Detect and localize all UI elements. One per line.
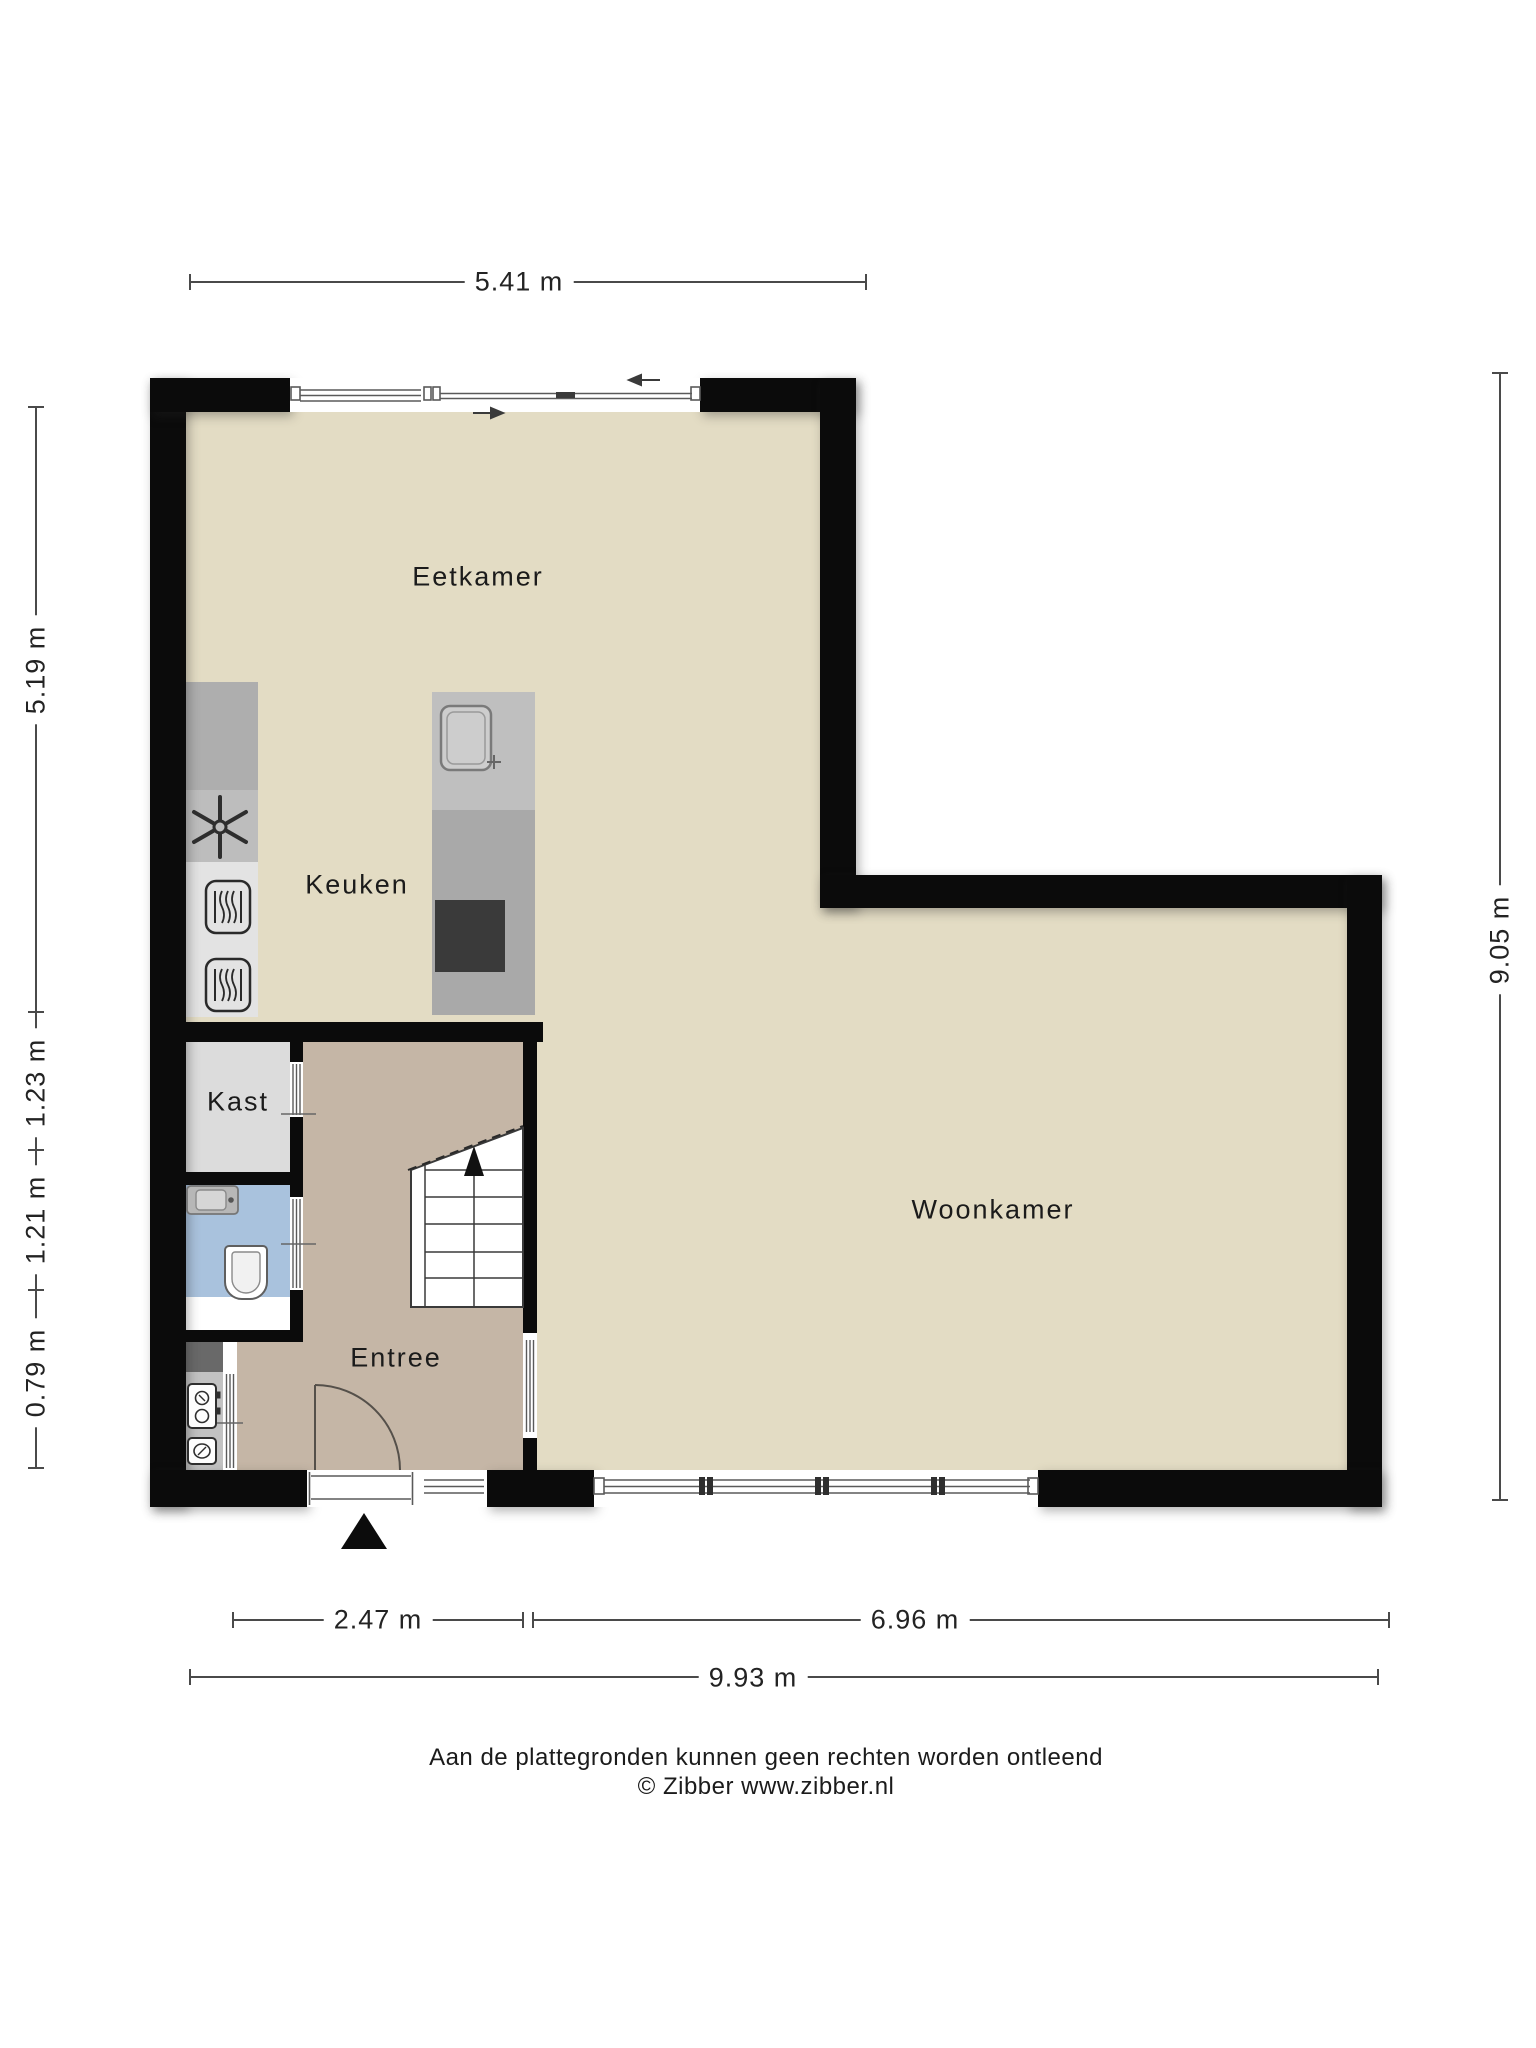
kitchen-counter-light-section bbox=[186, 862, 258, 1017]
dim-top: 5.41 m bbox=[465, 268, 574, 297]
wall-upper-east bbox=[820, 378, 856, 908]
wall-kitchen-hall bbox=[150, 1022, 543, 1042]
toilet-floor bbox=[186, 1185, 290, 1297]
meter-cupboard-floor bbox=[186, 1372, 223, 1470]
entrance-triangle-icon bbox=[341, 1513, 387, 1549]
room-label-keuken: Keuken bbox=[305, 872, 409, 899]
footer-disclaimer: Aan de plattegronden kunnen geen rechten… bbox=[429, 1744, 1103, 1772]
niche-floor bbox=[186, 1297, 290, 1330]
kitchen-counter-top bbox=[186, 682, 258, 790]
entree-glazed-panel bbox=[523, 1333, 537, 1438]
woonkamer-floor bbox=[537, 908, 1347, 1470]
room-label-entree: Entree bbox=[350, 1345, 442, 1372]
dim-left-4: 0.79 m bbox=[22, 1319, 51, 1428]
wall-niche-south bbox=[150, 1330, 303, 1342]
room-label-eetkamer: Eetkamer bbox=[412, 564, 544, 591]
kast-door bbox=[290, 1062, 303, 1117]
room-label-woonkamer: Woonkamer bbox=[911, 1197, 1074, 1224]
wall-step bbox=[820, 875, 1382, 908]
kitchen-counter-fan-section bbox=[186, 790, 258, 862]
wall-south-mid bbox=[487, 1470, 594, 1507]
dim-right: 9.05 m bbox=[1486, 886, 1515, 995]
dim-left-1: 5.19 m bbox=[22, 616, 51, 725]
wall-south-left bbox=[150, 1470, 307, 1507]
dim-left-3: 1.21 m bbox=[22, 1166, 51, 1275]
room-label-kast: Kast bbox=[207, 1089, 269, 1116]
entree-floor-west bbox=[237, 1342, 303, 1470]
south-window bbox=[594, 1470, 1038, 1507]
kitchen-island-body bbox=[432, 810, 535, 1015]
wall-north-left bbox=[150, 378, 290, 412]
top-sliding-window bbox=[290, 378, 700, 412]
footer-copyright: © Zibber www.zibber.nl bbox=[638, 1773, 895, 1801]
shaft-box bbox=[186, 1342, 223, 1372]
dim-bottom-2: 6.96 m bbox=[861, 1606, 970, 1635]
meter-cupboard-door bbox=[223, 1372, 237, 1470]
front-door-opening bbox=[307, 1470, 415, 1507]
entree-floor bbox=[303, 1042, 523, 1470]
kitchen-island-top bbox=[432, 692, 535, 810]
wall-east bbox=[1347, 875, 1382, 1507]
toilet-door bbox=[290, 1197, 303, 1290]
dim-left-2: 1.23 m bbox=[22, 1029, 51, 1138]
wall-south-right bbox=[1038, 1470, 1382, 1507]
wall-kast-south bbox=[150, 1172, 303, 1185]
dim-bottom-1: 2.47 m bbox=[324, 1606, 433, 1635]
wall-entree-east-upper bbox=[523, 1022, 537, 1333]
wall-entree-east-lower bbox=[523, 1438, 537, 1470]
dim-bottom-3: 9.93 m bbox=[699, 1664, 808, 1693]
floorplan-page: Eetkamer Keuken Kast Entree Woonkamer 5.… bbox=[0, 0, 1536, 2048]
front-sidelight-window bbox=[420, 1470, 487, 1507]
